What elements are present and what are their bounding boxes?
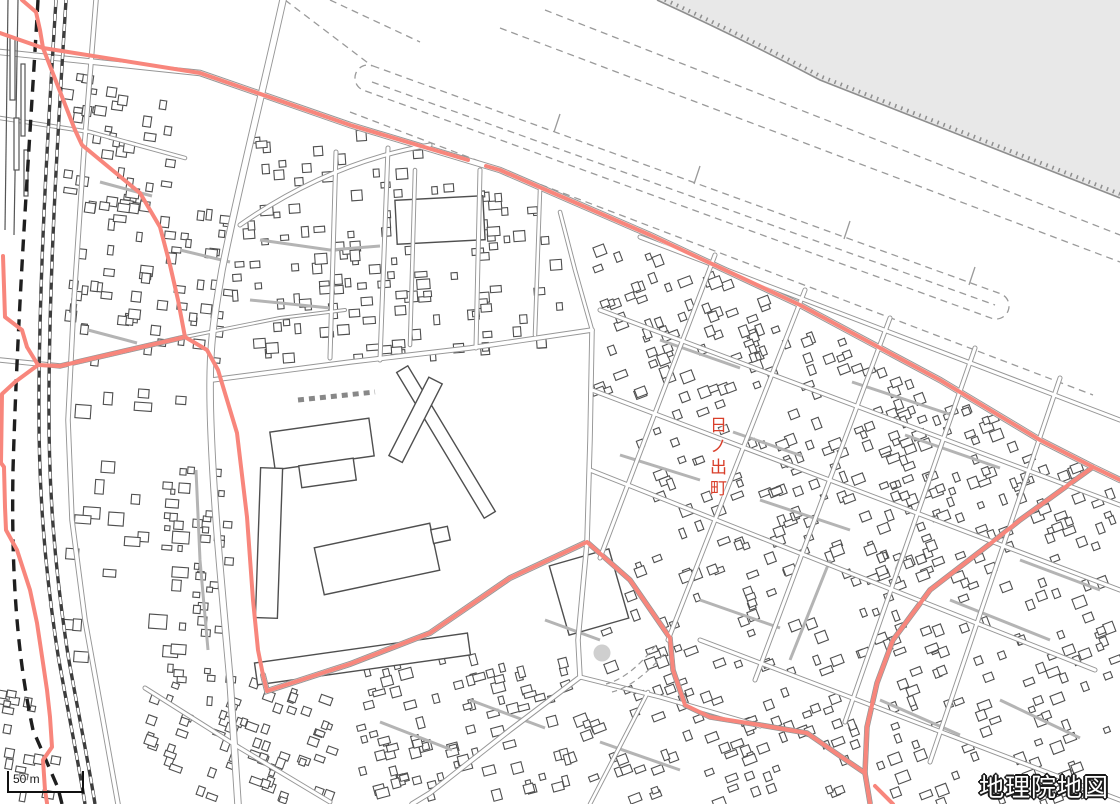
building: [279, 160, 286, 167]
building: [1103, 727, 1110, 734]
building: [888, 752, 903, 766]
building: [978, 478, 991, 487]
building: [832, 719, 843, 729]
building: [936, 797, 947, 804]
building: [73, 619, 82, 631]
building: [1076, 536, 1088, 548]
building: [837, 364, 850, 375]
building: [670, 438, 679, 447]
building: [977, 502, 984, 509]
building: [107, 245, 113, 255]
building: [165, 499, 178, 508]
building: [179, 483, 191, 493]
building: [954, 698, 965, 706]
building: [171, 644, 186, 655]
building: [864, 421, 875, 431]
building: [751, 786, 761, 797]
building: [772, 765, 779, 772]
building: [920, 626, 931, 636]
building: [172, 567, 189, 578]
building: [326, 746, 338, 756]
building: [349, 309, 360, 317]
building: [146, 715, 157, 726]
building: [912, 740, 920, 749]
building: [280, 235, 288, 241]
building: [5, 759, 13, 770]
building: [489, 243, 498, 250]
municipal-boundary-line: [1, 365, 52, 803]
building: [810, 703, 820, 713]
building: [165, 526, 171, 531]
building: [788, 409, 800, 420]
building: [291, 264, 298, 271]
building: [189, 313, 197, 322]
building: [80, 325, 88, 335]
building: [891, 491, 901, 502]
building: [301, 226, 309, 237]
building: [781, 688, 789, 698]
building: [717, 537, 730, 546]
building: [415, 271, 428, 277]
building: [404, 700, 417, 710]
building: [652, 254, 664, 267]
building: [734, 660, 742, 668]
building: [693, 593, 700, 602]
building: [253, 338, 265, 348]
building: [511, 762, 524, 775]
building: [373, 169, 379, 177]
building: [860, 608, 868, 617]
building: [163, 482, 173, 490]
building: [188, 467, 195, 474]
building: [178, 545, 183, 551]
building: [499, 663, 506, 672]
building: [518, 703, 530, 711]
building: [719, 742, 731, 753]
building: [103, 392, 113, 405]
building: [763, 771, 772, 781]
building: [1091, 542, 1100, 551]
building: [95, 479, 104, 494]
building: [482, 765, 496, 776]
building: [1023, 677, 1035, 686]
building: [177, 676, 186, 682]
building: [971, 436, 979, 444]
building: [661, 749, 670, 761]
building: [164, 231, 175, 239]
building: [266, 342, 279, 353]
building: [361, 735, 368, 743]
building: [262, 741, 271, 752]
building: [541, 236, 549, 244]
building: [628, 793, 642, 804]
building: [823, 706, 833, 714]
building: [128, 309, 141, 320]
building: [702, 303, 711, 314]
building: [101, 291, 112, 299]
building: [490, 286, 501, 293]
building: [580, 730, 593, 742]
building: [501, 208, 508, 216]
building: [124, 537, 140, 547]
building: [1050, 692, 1065, 705]
building: [396, 168, 408, 179]
building: [138, 389, 149, 398]
building: [432, 187, 438, 195]
building: [283, 353, 295, 363]
building: [394, 189, 402, 197]
building: [938, 646, 950, 658]
building: [361, 297, 373, 306]
building: [168, 664, 174, 672]
building: [935, 484, 945, 493]
building: [481, 304, 492, 312]
building: [432, 694, 440, 704]
building: [1082, 612, 1094, 623]
building: [74, 515, 91, 524]
building: [64, 187, 78, 194]
building: [704, 768, 714, 776]
building: [204, 668, 210, 673]
building: [652, 554, 662, 562]
building: [932, 556, 945, 566]
building: [614, 252, 623, 263]
building: [546, 715, 558, 727]
building: [351, 190, 362, 201]
building: [172, 580, 182, 592]
building: [556, 303, 562, 311]
building: [1072, 595, 1087, 609]
building: [826, 785, 834, 793]
building: [763, 699, 774, 710]
building: [117, 95, 127, 106]
building: [207, 697, 212, 706]
building: [588, 774, 599, 782]
building: [151, 325, 161, 335]
building: [498, 696, 505, 705]
building: [412, 776, 421, 785]
building: [625, 292, 636, 301]
building: [910, 667, 922, 677]
building: [380, 675, 393, 687]
building: [712, 696, 724, 705]
building: [274, 323, 282, 332]
building: [444, 184, 454, 192]
building: [313, 146, 323, 156]
building: [725, 773, 738, 783]
road: [380, 148, 388, 360]
building: [823, 353, 835, 364]
building: [337, 325, 349, 335]
building: [104, 268, 115, 276]
building: [2, 707, 14, 715]
scale-bar: 50 m: [7, 771, 84, 793]
building: [890, 787, 901, 798]
building: [3, 724, 11, 734]
building: [838, 338, 847, 346]
building: [731, 491, 744, 500]
building: [369, 264, 380, 274]
building: [1103, 672, 1112, 680]
building: [679, 391, 690, 402]
building: [171, 489, 175, 494]
building: [1046, 666, 1060, 678]
building: [999, 494, 1007, 506]
building: [1109, 655, 1120, 665]
building: [84, 202, 95, 213]
scale-bar-label: 50 m: [13, 772, 40, 786]
building: [919, 790, 932, 800]
building: [895, 770, 911, 784]
building: [74, 651, 89, 662]
building: [357, 283, 366, 290]
building: [108, 512, 124, 526]
building: [885, 509, 895, 521]
building: [51, 756, 61, 765]
building: [648, 272, 658, 283]
building: [831, 736, 845, 747]
building: [649, 360, 658, 369]
building: [1028, 706, 1035, 713]
building: [894, 734, 902, 744]
building: [134, 402, 152, 412]
building: [834, 785, 845, 795]
building: [363, 700, 374, 709]
building: [169, 764, 182, 774]
building: [338, 154, 346, 165]
building: [245, 721, 259, 732]
building: [253, 738, 262, 748]
building: [307, 736, 319, 747]
building: [1052, 522, 1064, 533]
building: [935, 783, 949, 797]
building: [877, 522, 890, 534]
building: [634, 765, 646, 774]
building: [809, 479, 820, 490]
building: [890, 377, 902, 388]
building: [552, 782, 565, 793]
building: [105, 126, 112, 132]
building: [976, 524, 988, 533]
building: [64, 170, 73, 179]
building: [1034, 739, 1042, 746]
building: [171, 682, 179, 689]
road: [590, 692, 648, 804]
building: [636, 295, 647, 304]
building: [666, 478, 675, 490]
building: [274, 170, 284, 180]
building: [850, 739, 860, 749]
building: [176, 729, 188, 739]
building: [314, 754, 325, 763]
building: [805, 440, 814, 450]
building: [201, 304, 212, 314]
building: [1036, 662, 1046, 673]
building: [830, 654, 844, 666]
building: [4, 748, 14, 758]
road: [560, 212, 592, 330]
building: [144, 734, 158, 747]
map-viewport[interactable]: 日ノ出町 50 m 地理院地図: [0, 0, 1120, 804]
building: [413, 150, 423, 159]
building: [877, 368, 887, 379]
road: [845, 348, 975, 722]
building: [159, 100, 167, 110]
building: [233, 274, 242, 281]
building: [486, 669, 495, 678]
building: [391, 258, 396, 265]
building: [375, 750, 386, 761]
building: [803, 353, 813, 364]
building: [902, 475, 913, 484]
building: [262, 164, 270, 174]
street: [250, 300, 330, 308]
building: [1078, 648, 1092, 660]
building: [255, 468, 282, 619]
building: [1096, 522, 1106, 534]
building: [143, 116, 152, 127]
building: [653, 428, 661, 435]
building: [76, 74, 83, 82]
river-polygon: [657, 0, 1120, 198]
building: [314, 226, 325, 232]
building: [839, 471, 848, 483]
building: [350, 250, 360, 261]
building: [1050, 740, 1064, 754]
building: [958, 594, 969, 603]
building: [117, 203, 130, 213]
building: [451, 272, 458, 279]
building: [695, 520, 704, 531]
building: [747, 629, 755, 636]
building: [395, 196, 485, 245]
building: [604, 660, 619, 674]
building: [1000, 581, 1013, 592]
building: [1059, 673, 1068, 683]
building: [174, 521, 184, 530]
building: [932, 624, 944, 637]
building: [918, 415, 927, 423]
building: [391, 778, 401, 789]
building: [1063, 526, 1076, 537]
building: [968, 581, 979, 589]
building: [607, 345, 616, 355]
building: [1033, 696, 1043, 706]
building: [172, 531, 190, 544]
place-label: 日ノ出町: [708, 416, 725, 500]
building: [1041, 710, 1051, 720]
building: [683, 730, 693, 741]
building: [652, 712, 666, 722]
building: [527, 207, 537, 214]
building: [753, 381, 761, 389]
building: [202, 527, 208, 533]
building: [539, 773, 546, 780]
building: [315, 253, 328, 264]
building: [736, 479, 743, 487]
building: [967, 476, 980, 489]
building: [811, 417, 822, 430]
building: [315, 729, 325, 737]
building: [678, 276, 693, 288]
building: [674, 645, 682, 653]
building: [487, 226, 500, 236]
building: [680, 370, 695, 384]
building: [200, 535, 210, 543]
building: [82, 286, 88, 295]
building: [747, 314, 758, 323]
building: [593, 244, 607, 257]
building: [700, 691, 712, 703]
building: [101, 150, 113, 160]
building: [302, 163, 311, 172]
building: [905, 379, 914, 389]
building: [106, 87, 117, 98]
building: [179, 623, 185, 630]
building: [319, 694, 333, 705]
building: [399, 667, 414, 680]
building: [665, 684, 676, 694]
building: [738, 325, 750, 338]
building: [764, 552, 776, 565]
building: [726, 308, 738, 318]
building: [1025, 599, 1035, 610]
street: [1020, 560, 1100, 590]
building: [101, 461, 115, 473]
building: [646, 646, 659, 655]
building: [679, 528, 687, 539]
building: [223, 521, 232, 528]
municipal-boundary-line: [3, 256, 185, 366]
building: [197, 211, 204, 221]
building: [345, 278, 351, 287]
building: [176, 396, 187, 405]
building: [193, 605, 200, 613]
building: [715, 400, 725, 409]
building: [1052, 588, 1061, 598]
building: [164, 750, 176, 759]
building: [767, 589, 777, 597]
building: [90, 281, 98, 292]
building: [186, 239, 192, 247]
building: [890, 482, 897, 489]
building: [334, 274, 342, 284]
building: [788, 619, 802, 632]
pond: [594, 645, 611, 662]
building: [523, 783, 535, 794]
building: [771, 326, 780, 334]
building: [255, 283, 262, 289]
building: [513, 327, 521, 337]
building: [219, 491, 225, 497]
building: [1038, 578, 1047, 588]
street: [88, 330, 137, 343]
building: [593, 264, 603, 273]
building: [506, 703, 519, 715]
building: [860, 430, 867, 438]
building: [877, 761, 885, 770]
building: [131, 291, 141, 302]
building: [483, 331, 492, 338]
building: [225, 557, 234, 565]
building: [357, 724, 366, 731]
building: [613, 369, 627, 380]
building: [389, 766, 398, 776]
building: [634, 566, 647, 578]
attribution-link[interactable]: 地理院地図: [979, 768, 1109, 804]
building: [583, 720, 591, 729]
building: [283, 319, 289, 325]
